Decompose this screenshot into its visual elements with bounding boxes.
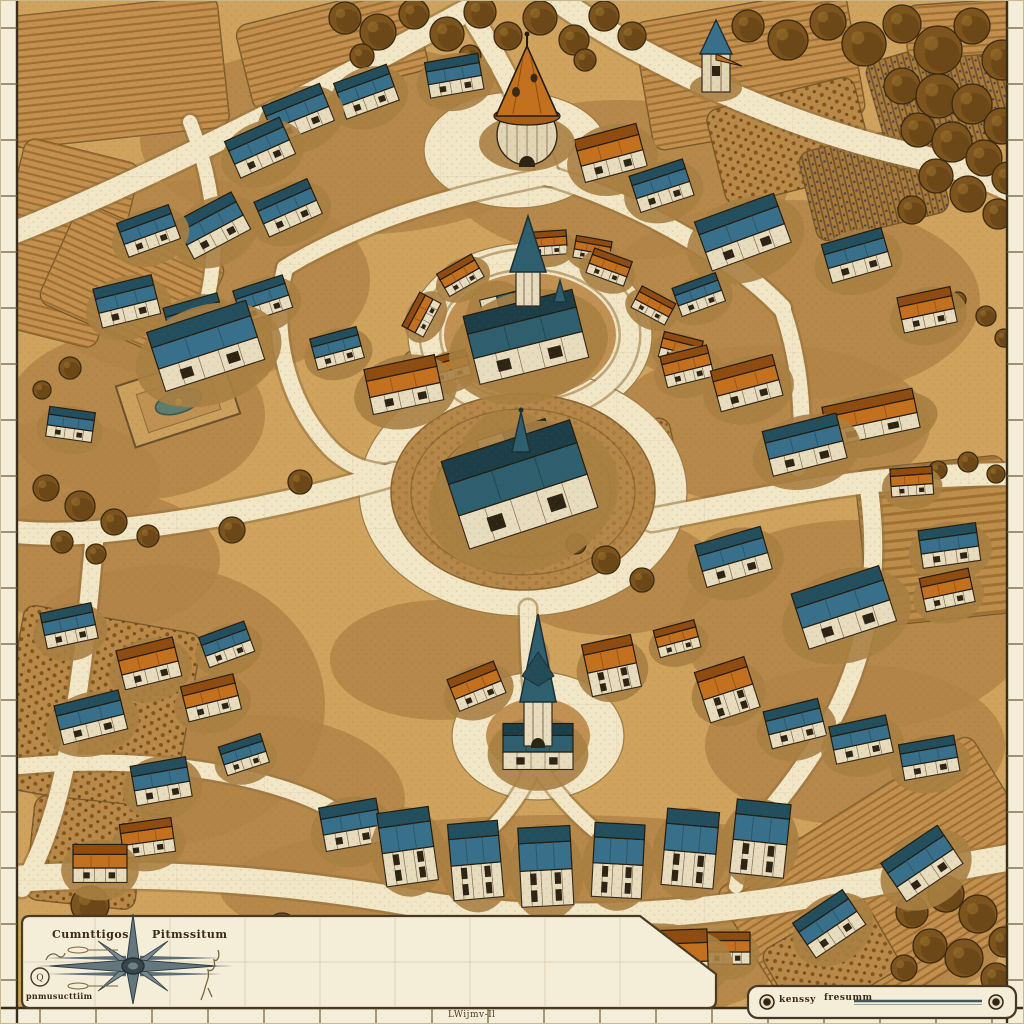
- map-area: [0, 0, 1024, 1024]
- scale-label-start: kenssy: [779, 995, 816, 1005]
- compass-label-footnote: pnmusucttiim: [26, 991, 92, 1001]
- compass-label-primary: Cumnttigos: [52, 928, 129, 941]
- map-canvas: Q: [0, 0, 1024, 1024]
- village-map: Q Cumnttigos Pitmssitum pnmusucttiim ken…: [0, 0, 1024, 1024]
- svg-text:Q: Q: [36, 974, 43, 984]
- compass-label-secondary: Pitmssitum: [152, 928, 227, 941]
- map-margin-label: LWijmv-Il: [448, 1010, 496, 1020]
- scale-label-distance: fresumm: [824, 993, 873, 1003]
